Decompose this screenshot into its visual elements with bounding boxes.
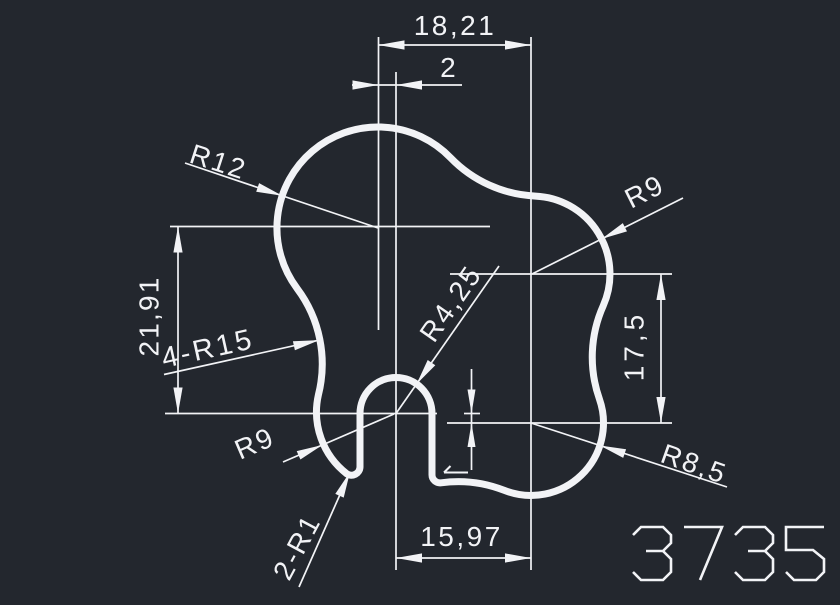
svg-text:2: 2 — [440, 52, 458, 83]
svg-text:15,97: 15,97 — [420, 521, 503, 552]
svg-text:18,21: 18,21 — [414, 10, 497, 41]
svg-text:17,5: 17,5 — [619, 311, 650, 382]
